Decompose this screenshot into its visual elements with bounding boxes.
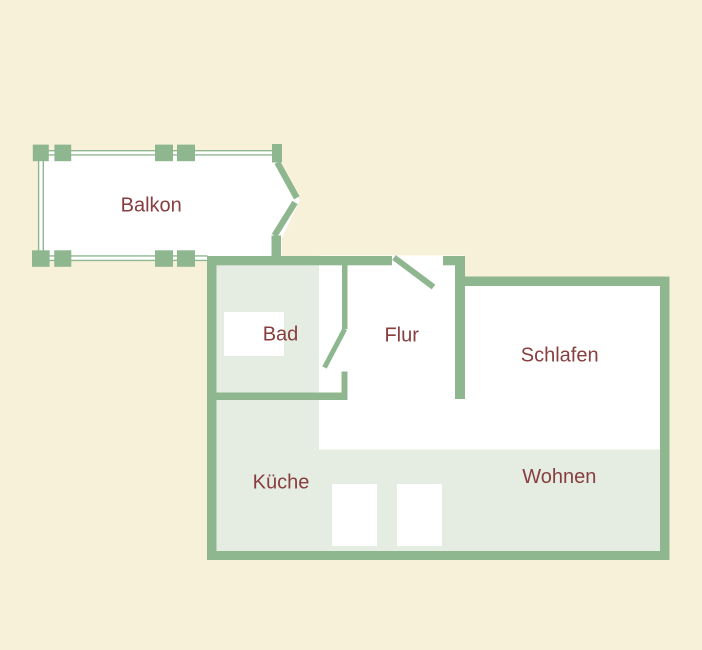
svg-text:Flur: Flur [384, 324, 419, 346]
svg-text:Schlafen: Schlafen [521, 344, 599, 366]
svg-text:Bad: Bad [263, 323, 299, 345]
svg-text:Küche: Küche [253, 472, 310, 494]
svg-text:Wohnen: Wohnen [522, 466, 596, 488]
svg-text:Balkon: Balkon [121, 194, 182, 216]
